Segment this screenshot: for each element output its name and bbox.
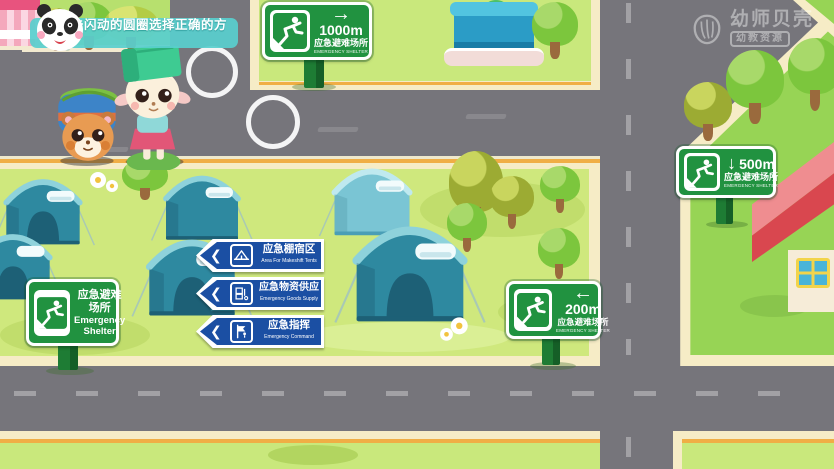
sign-label-en: EMERGENCY SHELTER [314, 49, 368, 55]
grass-strip-bottom [0, 431, 600, 469]
road-center-line [14, 391, 820, 396]
red-building-window [796, 258, 830, 288]
blue-building-roof [450, 2, 538, 16]
watermark: 幼师贝壳 幼教资源 [690, 10, 814, 47]
sign-label-en: EMERGENCY SHELTER [556, 328, 610, 334]
blue-building-base [444, 48, 544, 66]
tree [788, 38, 834, 112]
road-mark [465, 114, 507, 119]
sign-post [58, 344, 78, 370]
road-center-line [626, 437, 631, 467]
sign-label-en: Shelter [84, 326, 116, 337]
sign-label-cn: 应急避难场所 [314, 38, 368, 49]
arrow-right-icon: → [331, 7, 351, 22]
flower [438, 316, 472, 342]
sign-label-en: Emergency Goods Supply [257, 296, 321, 303]
blue-sign-stack: ❮ 应急棚宿区 Area For Makeshift Tents ❮ 应急物资供… [196, 239, 324, 353]
road-center-line [626, 3, 631, 355]
sign-label-cn: 应急物资供应 [257, 279, 321, 296]
watermark-badge: 幼教资源 [730, 31, 790, 47]
tent [330, 205, 490, 329]
goods-icon [230, 282, 253, 305]
sign-distance: 500m [739, 156, 775, 172]
grass [682, 443, 834, 469]
sign-shelter: 应急避难 场所 Emergency Shelter [26, 279, 119, 346]
tree [684, 82, 732, 142]
watermark-logo [690, 12, 724, 46]
sign-makeshift-tents: ❮ 应急棚宿区 Area For Makeshift Tents [196, 239, 324, 272]
tree [532, 2, 578, 60]
sign-post [304, 57, 324, 88]
sign-label-cn: 应急避难场所 [724, 172, 778, 183]
tree [538, 228, 580, 280]
grass-patch [268, 445, 358, 465]
tent-icon [230, 244, 253, 267]
road-mark [317, 127, 359, 132]
sign-1000m: → 1000m 应急避难场所 EMERGENCY SHELTER [262, 2, 372, 60]
tree [490, 176, 534, 230]
sign-distance: 1000m [319, 22, 363, 38]
watermark-brand: 幼师贝壳 [730, 10, 814, 29]
curb [0, 431, 600, 439]
direction-hotspot-circle[interactable] [186, 46, 238, 98]
chevron-left-icon: ❮ [210, 239, 222, 272]
sign-label-en: EMERGENCY SHELTER [724, 183, 778, 189]
sign-label-en: Emergency Command [257, 334, 321, 341]
chevron-left-icon: ❮ [210, 277, 222, 310]
sign-label-en: Area For Makeshift Tents [257, 258, 321, 265]
sign-label-cn: 应急棚宿区 [257, 241, 321, 258]
sign-goods-supply: ❮ 应急物资供应 Emergency Goods Supply [196, 277, 324, 310]
command-flag-icon [230, 320, 253, 343]
arrow-down-icon: ↓ [727, 156, 736, 171]
exit-runner-icon [34, 290, 70, 336]
exit-runner-icon [514, 289, 552, 331]
flower [88, 170, 120, 194]
sign-post [542, 337, 560, 365]
sign-label-cn: 应急指挥 [257, 317, 321, 334]
arrow-left-icon: ← [573, 286, 593, 301]
chevron-left-icon: ❮ [210, 315, 222, 348]
panda-avatar [34, 2, 86, 58]
sheep-character [108, 46, 196, 170]
tree [540, 166, 580, 214]
window-mullion [799, 272, 827, 275]
game-scene: → 1000m 应急避难场所 EMERGENCY SHELTER ↓ 500m … [0, 0, 834, 469]
grass-strip-bottom [673, 431, 834, 469]
sign-post [716, 196, 733, 224]
sign-label-cn: 应急避难场所 [557, 317, 608, 328]
sign-distance: 200m [565, 301, 601, 317]
sign-label-en: Emergency [74, 315, 125, 326]
sign-500m: ↓ 500m 应急避难场所 EMERGENCY SHELTER [676, 146, 776, 198]
sign-200m: ← 200m 应急避难场所 EMERGENCY SHELTER [506, 281, 601, 339]
exit-runner-icon [684, 153, 720, 191]
sign-emergency-command: ❮ 应急指挥 Emergency Command [196, 315, 324, 348]
exit-runner-icon [270, 10, 310, 52]
direction-hotspot-circle[interactable] [246, 95, 300, 149]
tree [726, 50, 784, 126]
sign-label-cn: 场所 [89, 302, 111, 315]
sign-label-cn: 应急避难 [78, 289, 122, 302]
